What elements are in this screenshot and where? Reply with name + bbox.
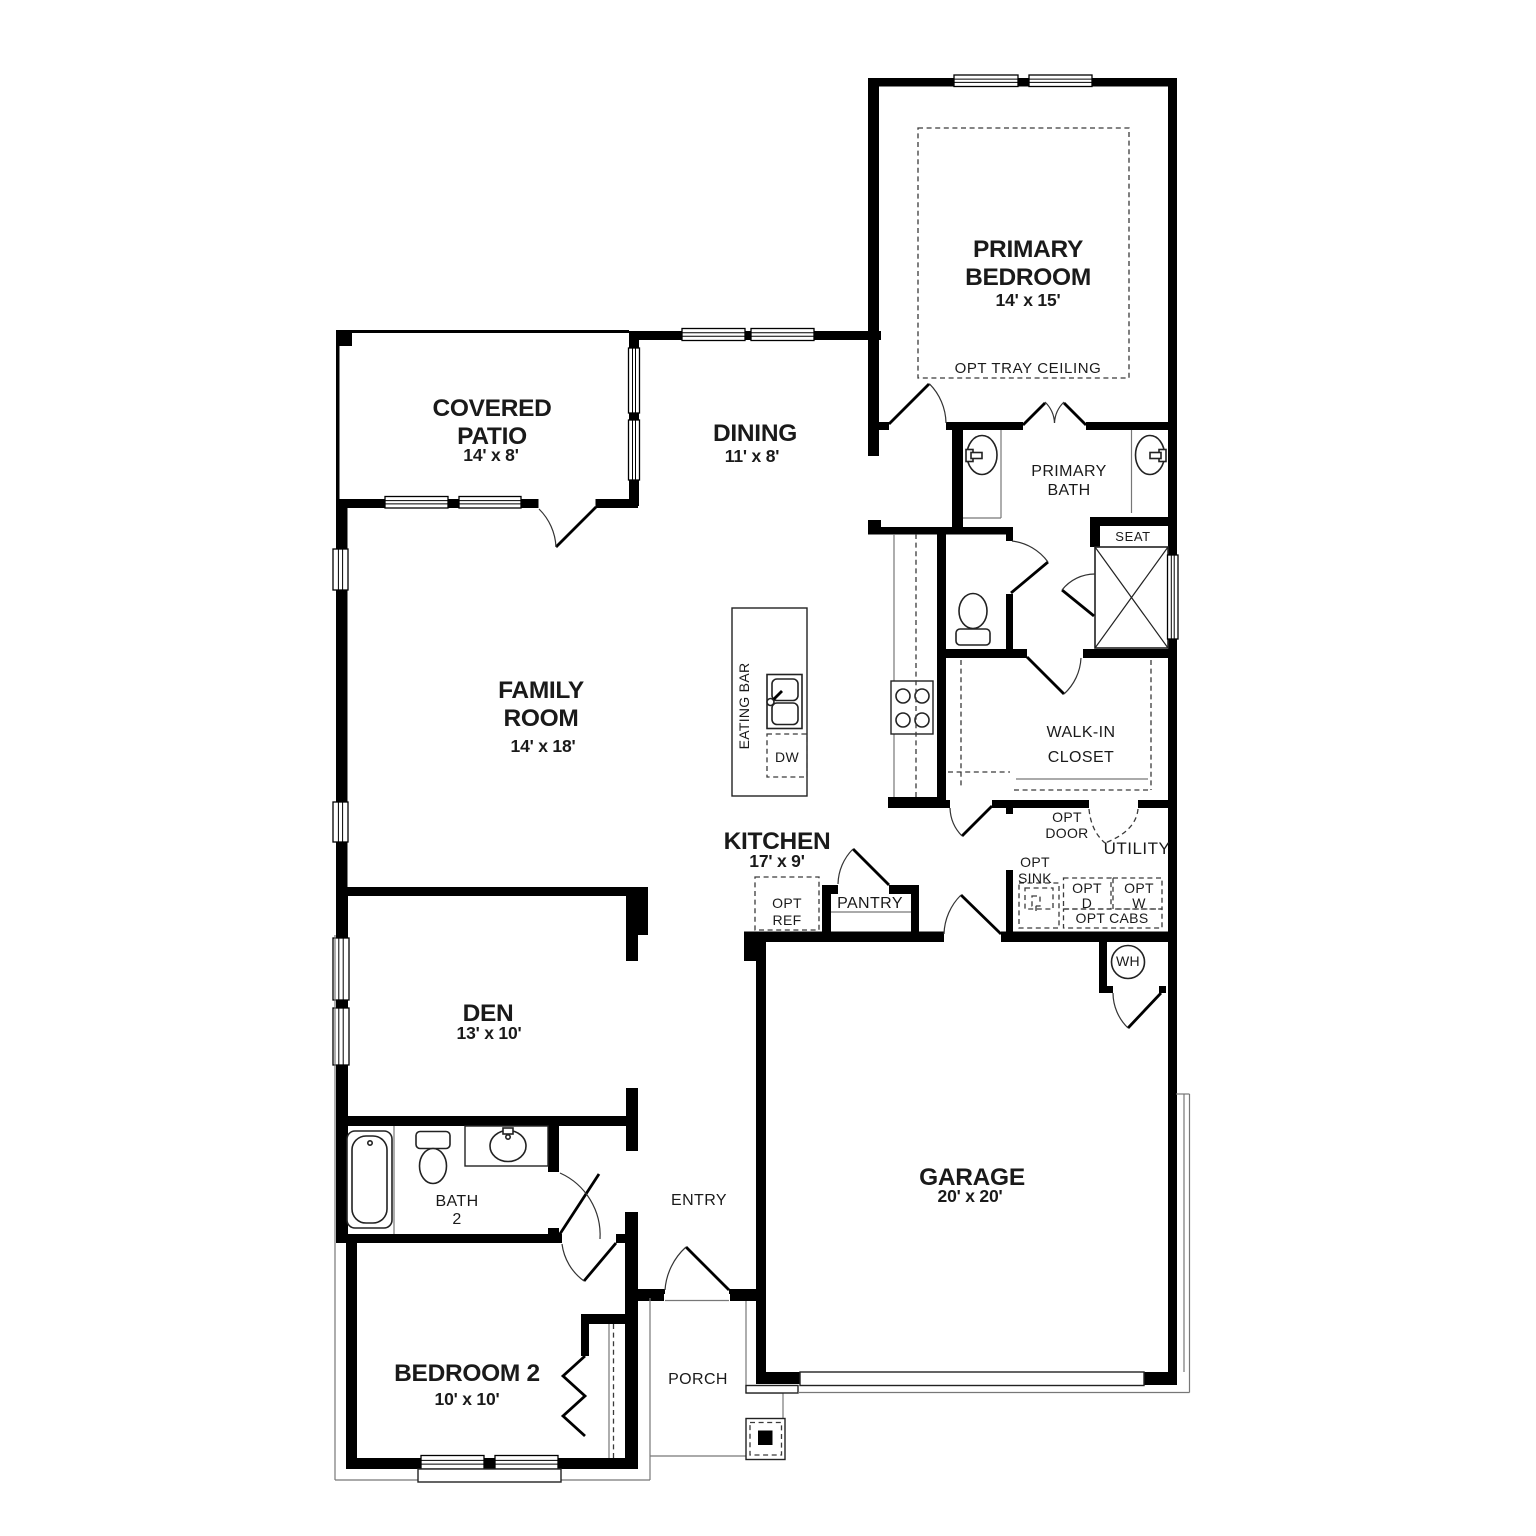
svg-text:CLOSET: CLOSET: [1048, 749, 1114, 766]
svg-text:11' x 8': 11' x 8': [725, 446, 779, 466]
svg-text:14' x 18': 14' x 18': [511, 736, 576, 756]
svg-text:EATING BAR: EATING BAR: [736, 663, 752, 750]
svg-text:OPT: OPT: [1052, 809, 1082, 825]
svg-text:WH: WH: [1116, 953, 1140, 969]
svg-text:PORCH: PORCH: [668, 1371, 728, 1388]
svg-text:14' x 15': 14' x 15': [996, 290, 1061, 310]
svg-text:13' x 10': 13' x 10': [457, 1023, 522, 1043]
svg-text:BEDROOM: BEDROOM: [965, 264, 1091, 291]
svg-text:14' x 8': 14' x 8': [463, 445, 518, 465]
svg-text:DOOR: DOOR: [1045, 825, 1088, 841]
svg-text:OPT: OPT: [1020, 854, 1050, 870]
svg-text:OPT: OPT: [1072, 880, 1102, 896]
svg-text:ROOM: ROOM: [503, 705, 578, 732]
svg-text:DW: DW: [775, 749, 799, 765]
svg-text:20' x 20': 20' x 20': [938, 1186, 1003, 1206]
svg-text:COVERED: COVERED: [432, 395, 551, 422]
svg-text:SEAT: SEAT: [1115, 529, 1150, 544]
svg-text:OPT CABS: OPT CABS: [1076, 910, 1149, 926]
svg-text:OPT: OPT: [772, 895, 802, 911]
svg-text:OPT TRAY CEILING: OPT TRAY CEILING: [955, 360, 1102, 377]
svg-text:10' x 10': 10' x 10': [435, 1389, 500, 1409]
svg-text:PRIMARY: PRIMARY: [1031, 463, 1106, 480]
svg-text:BATH: BATH: [1047, 482, 1090, 499]
svg-text:BATH: BATH: [435, 1193, 478, 1210]
svg-text:2: 2: [452, 1211, 461, 1228]
svg-text:DINING: DINING: [713, 420, 797, 447]
svg-text:PANTRY: PANTRY: [837, 895, 903, 912]
svg-text:FAMILY: FAMILY: [498, 677, 584, 704]
svg-text:BEDROOM 2: BEDROOM 2: [394, 1360, 540, 1387]
svg-text:REF: REF: [773, 912, 802, 928]
svg-text:UTILITY: UTILITY: [1104, 839, 1171, 858]
svg-text:17' x 9': 17' x 9': [749, 851, 804, 871]
svg-text:PRIMARY: PRIMARY: [973, 236, 1083, 263]
svg-text:OPT: OPT: [1124, 880, 1154, 896]
svg-text:ENTRY: ENTRY: [671, 1192, 727, 1209]
svg-text:WALK-IN: WALK-IN: [1047, 724, 1116, 741]
svg-text:SINK: SINK: [1018, 870, 1052, 886]
